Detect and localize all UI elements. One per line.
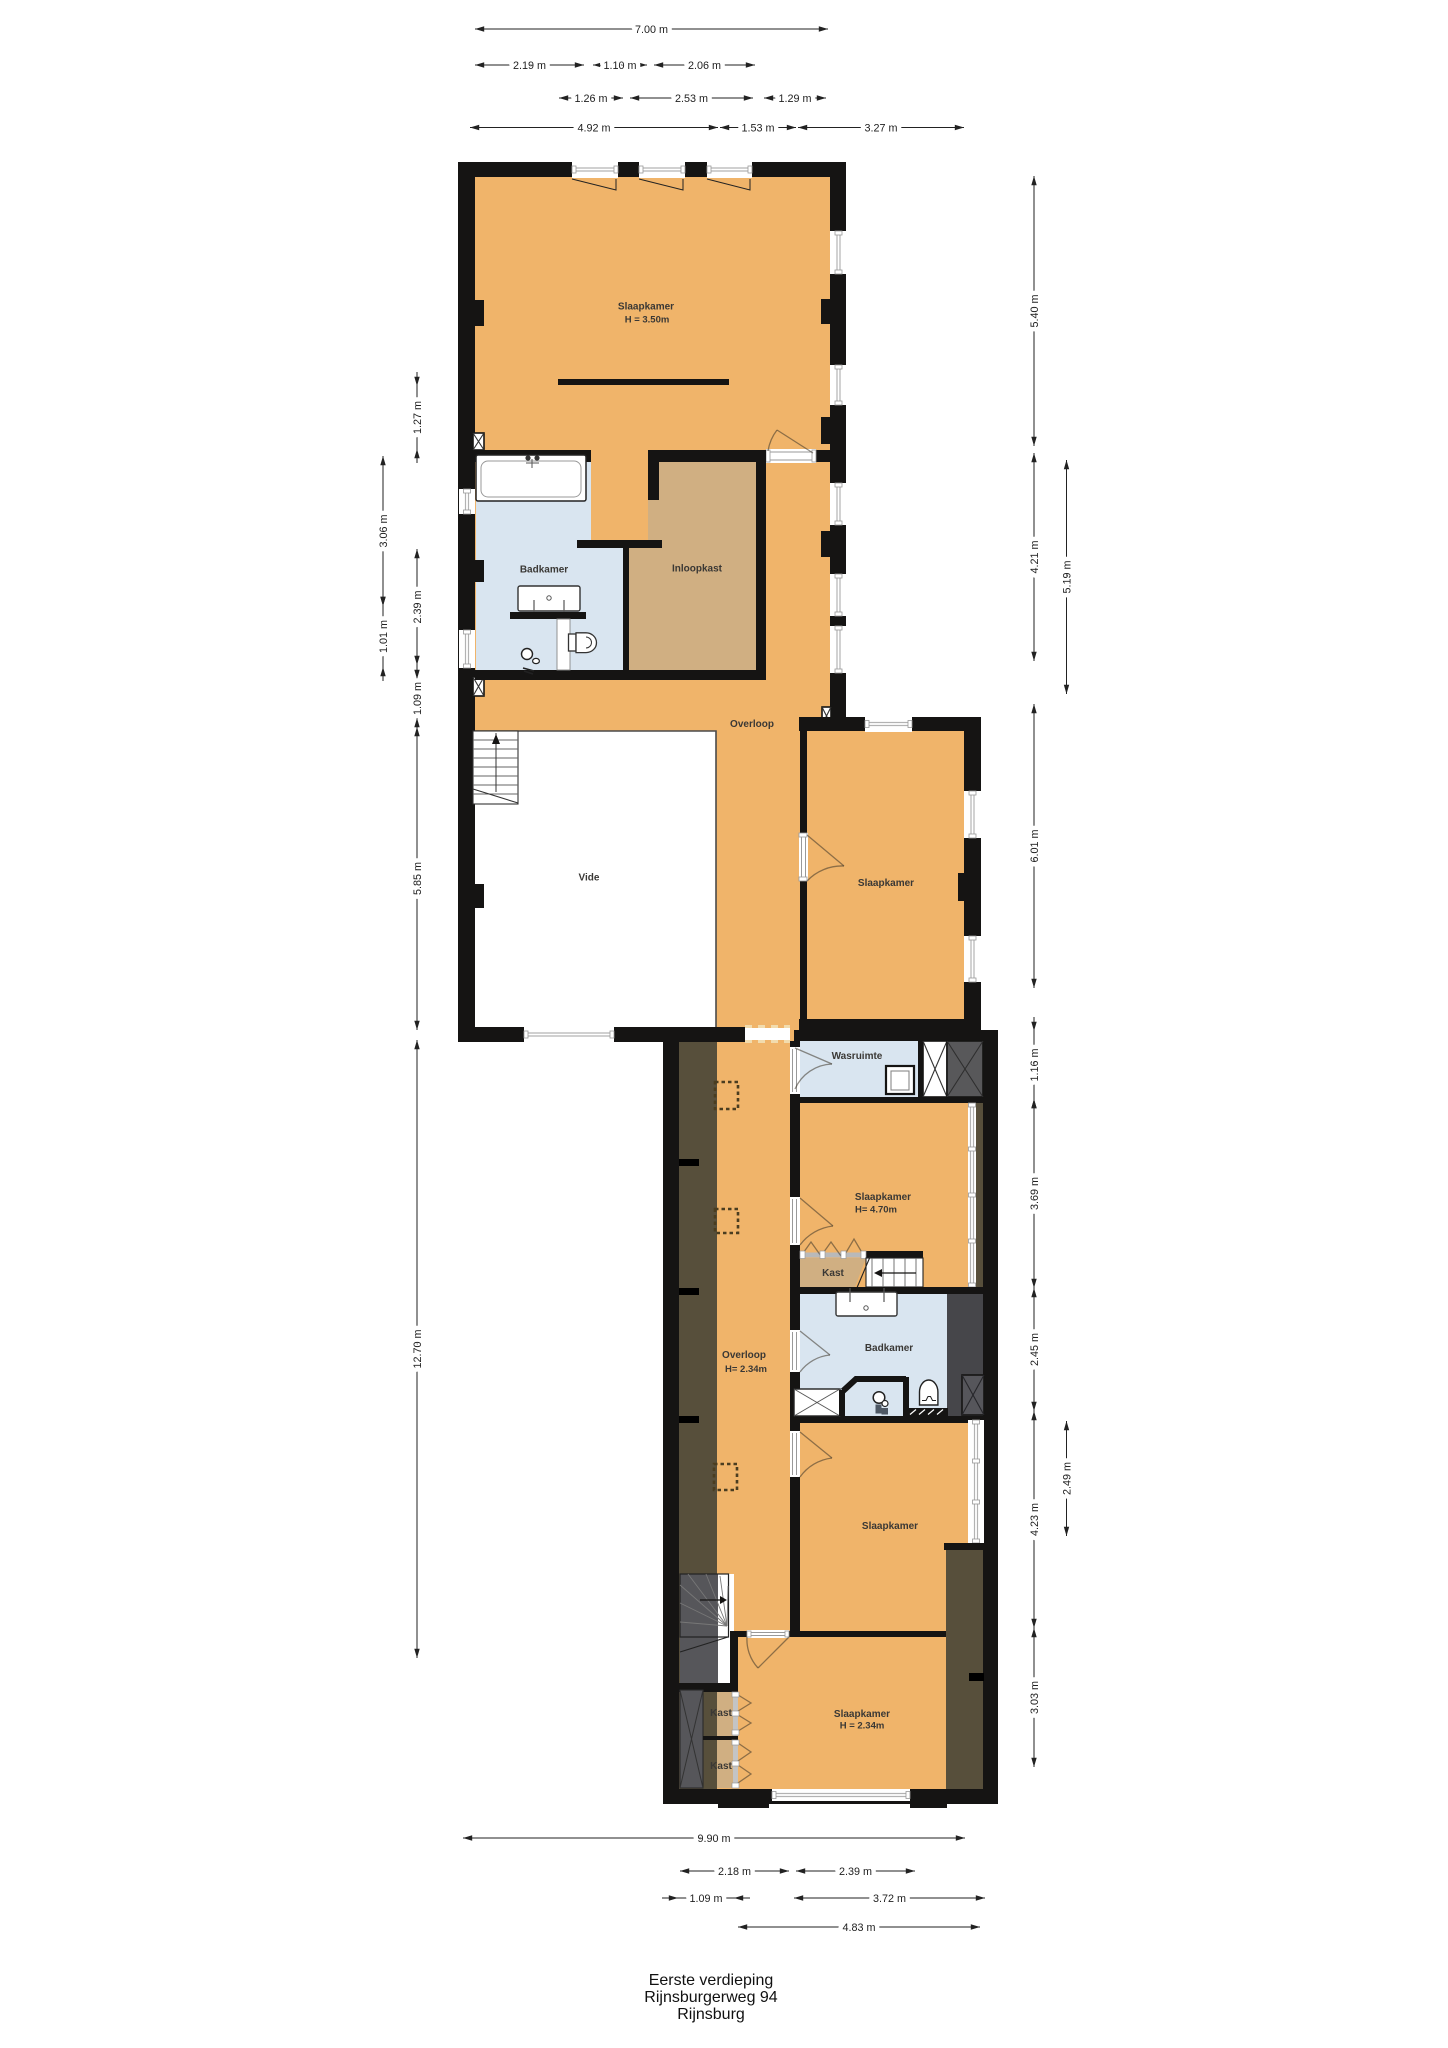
svg-text:3.72 m: 3.72 m [873, 1893, 906, 1905]
svg-text:2.19 m: 2.19 m [513, 60, 546, 72]
svg-text:Badkamer: Badkamer [865, 1343, 913, 1354]
svg-text:2.49 m: 2.49 m [1061, 1462, 1073, 1495]
svg-text:7.00 m: 7.00 m [635, 24, 668, 36]
svg-text:Overloop: Overloop [730, 719, 774, 730]
svg-text:2.53 m: 2.53 m [675, 93, 708, 105]
svg-text:5.19 m: 5.19 m [1061, 560, 1073, 593]
svg-text:H = 3.50m: H = 3.50m [625, 315, 670, 326]
svg-text:Wasruimte: Wasruimte [832, 1051, 883, 1062]
svg-text:Overloop: Overloop [722, 1350, 766, 1361]
svg-text:4.92 m: 4.92 m [577, 122, 610, 134]
svg-text:3.06 m: 3.06 m [378, 514, 390, 547]
svg-text:2.39 m: 2.39 m [412, 590, 424, 623]
svg-text:1.10 m: 1.10 m [603, 60, 636, 72]
svg-text:H = 2.34m: H = 2.34m [840, 1721, 885, 1732]
svg-text:1.53 m: 1.53 m [741, 122, 774, 134]
svg-text:2.18 m: 2.18 m [718, 1866, 751, 1878]
svg-text:4.83 m: 4.83 m [842, 1922, 875, 1934]
svg-text:5.85 m: 5.85 m [412, 862, 424, 895]
svg-text:Badkamer: Badkamer [520, 565, 568, 576]
svg-text:4.23 m: 4.23 m [1029, 1503, 1041, 1536]
svg-text:1.01 m: 1.01 m [378, 620, 390, 653]
svg-text:3.27 m: 3.27 m [864, 122, 897, 134]
svg-text:9.90 m: 9.90 m [697, 1833, 730, 1845]
svg-text:Slaapkamer: Slaapkamer [858, 878, 914, 889]
svg-text:H= 4.70m: H= 4.70m [855, 1205, 897, 1216]
svg-text:Slaapkamer: Slaapkamer [862, 1521, 918, 1532]
svg-text:2.06 m: 2.06 m [688, 60, 721, 72]
svg-text:Slaapkamer: Slaapkamer [834, 1709, 890, 1720]
svg-text:Vide: Vide [579, 873, 600, 884]
svg-text:5.40 m: 5.40 m [1029, 294, 1041, 327]
svg-text:Slaapkamer: Slaapkamer [855, 1192, 911, 1203]
svg-text:Eerste verdieping: Eerste verdieping [649, 1972, 774, 1989]
svg-text:Inloopkast: Inloopkast [672, 564, 723, 575]
svg-text:3.03 m: 3.03 m [1029, 1681, 1041, 1714]
svg-text:1.16 m: 1.16 m [1029, 1048, 1041, 1081]
svg-text:Rijnsburg: Rijnsburg [677, 2006, 745, 2023]
svg-text:Kast: Kast [822, 1268, 844, 1279]
svg-text:12.70 m: 12.70 m [412, 1329, 424, 1368]
svg-text:H= 2.34m: H= 2.34m [725, 1364, 767, 1375]
svg-text:2.39 m: 2.39 m [839, 1866, 872, 1878]
svg-text:6.01 m: 6.01 m [1029, 829, 1041, 862]
svg-text:1.09 m: 1.09 m [689, 1893, 722, 1905]
svg-text:2.45 m: 2.45 m [1029, 1333, 1041, 1366]
svg-text:1.27 m: 1.27 m [412, 401, 424, 434]
svg-text:Kast: Kast [710, 1761, 732, 1772]
svg-text:Slaapkamer: Slaapkamer [618, 302, 674, 313]
svg-text:1.26 m: 1.26 m [574, 93, 607, 105]
svg-text:1.29 m: 1.29 m [778, 93, 811, 105]
svg-text:3.69 m: 3.69 m [1029, 1177, 1041, 1210]
svg-text:Kast: Kast [710, 1708, 732, 1719]
svg-text:Rijnsburgerweg 94: Rijnsburgerweg 94 [644, 1989, 778, 2006]
svg-text:1.09 m: 1.09 m [412, 682, 424, 715]
svg-text:4.21 m: 4.21 m [1029, 540, 1041, 573]
